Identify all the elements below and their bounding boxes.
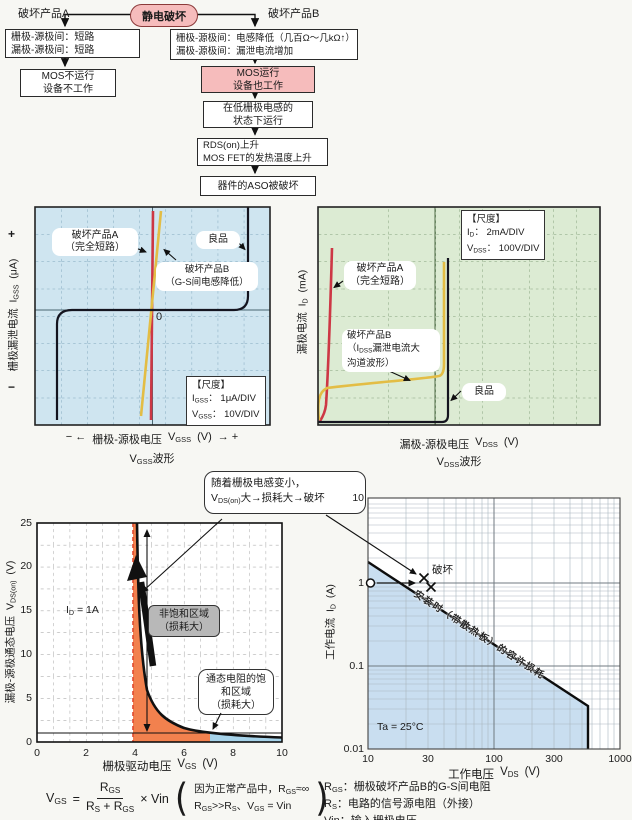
- vdss-callout-damaged-a: 破坏产品A（完全短路）: [344, 261, 416, 290]
- vdson-y-tick: 10: [14, 648, 32, 660]
- vgss-good-label: 良品: [196, 231, 240, 249]
- vdss-scope-graphics: [318, 207, 600, 425]
- figure-electrostatic-damage: 破坏产品A 静电破坏 破坏产品B 栅极-源极间：短路漏极-源极间：短路 栅极-源…: [0, 0, 632, 820]
- vdson-x-axis-label: 栅极驱动电压 VGS (V): [60, 758, 260, 774]
- vdss-x-axis-label: 漏极-源极电压 VDSS (V): [349, 436, 569, 452]
- soa-x-tick: 300: [537, 753, 571, 765]
- soa-ta-label: Ta = 25°C: [377, 721, 424, 733]
- operating-point: [367, 579, 375, 587]
- soa-legend: RGS：栅极破坏产品B的G-S间电阻 RS：电路的信号源电阻（外接） Vin：输…: [324, 780, 491, 820]
- vgss-x-axis-label: − ← 栅极-源极电压 VGSS (V) → +: [42, 431, 262, 447]
- soa-y-tick: 0.1: [338, 660, 364, 672]
- soa-x-tick: 100: [477, 753, 511, 765]
- graphics-layer: [0, 0, 632, 820]
- vgss-scale-box: 【尺度】 IGSS： 1μA/DIV VGSS： 10V/DIV: [186, 376, 266, 426]
- formula-note: 因为正常产品中，RGS≈∞ RGS>>RS、VGS = Vin: [194, 782, 309, 816]
- vdss-callout-damaged-b: 破坏产品B （IDSS漏泄电流大 沟道波形）: [342, 329, 440, 372]
- branch-a-label: 破坏产品A: [18, 5, 69, 21]
- soa-chart-graphics: [367, 498, 621, 749]
- saturated-region-label: 通态电阻的饱 和区域 （损耗大）: [198, 669, 274, 715]
- vdss-scale-box: 【尺度】 ID： 2mA/DIV VDSS： 100V/DIV: [461, 210, 545, 260]
- vgss-plus-sign: +: [8, 227, 15, 241]
- vdson-y-tick: 15: [14, 604, 32, 616]
- soa-y-tick: 10: [338, 492, 364, 504]
- vdson-x-tick: 10: [272, 747, 292, 759]
- vdson-x-tick: 0: [27, 747, 47, 759]
- flow-box-a2: MOS不运行设备不工作: [20, 69, 116, 97]
- soa-x-tick: 1000: [603, 753, 632, 765]
- soa-y-axis-label: 工作电流 ID (A): [323, 584, 338, 660]
- vgs-formula: VGS = RGS RS + RGS × Vin ( 因为正常产品中，RGS≈∞…: [46, 780, 329, 817]
- soa-y-tick: 1: [338, 577, 364, 589]
- vdss-waveform-title: VDSS波形: [399, 453, 519, 469]
- vdson-y-tick: 20: [14, 560, 32, 572]
- vdson-y-tick: 5: [14, 692, 32, 704]
- vgss-waveform-title: VGSS波形: [92, 450, 212, 466]
- unsaturated-region-label: 非饱和区域（损耗大）: [148, 605, 220, 637]
- vdss-y-axis-label: 漏极电流 ID (mA): [295, 270, 310, 355]
- vdson-y-axis-label: 漏极-源极通态电压 VDS(on) (V): [3, 561, 18, 704]
- vgss-minus-sign: −: [8, 380, 15, 394]
- open-paren: (: [175, 781, 188, 815]
- flow-box-b5: 器件的ASO被破坏: [200, 176, 316, 196]
- soa-break-label: 破坏: [432, 562, 453, 577]
- flow-box-a1: 栅极-源极间：短路漏极-源极间：短路: [5, 29, 140, 58]
- id-1a-label: ID = 1A: [66, 604, 99, 617]
- flow-box-b2: MOS运行设备也工作: [201, 66, 315, 93]
- vgss-callout-damaged-b: 破坏产品B（G-S间电感降低）: [156, 262, 258, 291]
- flow-box-b1: 栅极-源极间：电感降低（几百Ω～几kΩ↑）漏极-源极间：漏泄电流增加: [170, 29, 358, 60]
- root-node-electrostatic-damage: 静电破坏: [130, 4, 198, 27]
- vgss-y-axis-label: 栅极漏泄电流 IGSS (μA): [6, 259, 21, 372]
- branch-b-label: 破坏产品B: [268, 5, 319, 21]
- vdson-y-tick: 25: [14, 517, 32, 529]
- soa-x-tick: 30: [411, 753, 445, 765]
- flow-box-b3: 在低栅极电感的状态下运行: [203, 101, 313, 128]
- soa-x-tick: 10: [351, 753, 385, 765]
- vdss-good-label: 良品: [462, 383, 506, 401]
- vgss-zero-label: 0: [156, 311, 162, 323]
- flow-box-b4: RDS(on)上升MOS FET的发热温度上升: [197, 138, 328, 166]
- vgss-callout-damaged-a: 破坏产品A（完全短路）: [52, 228, 138, 256]
